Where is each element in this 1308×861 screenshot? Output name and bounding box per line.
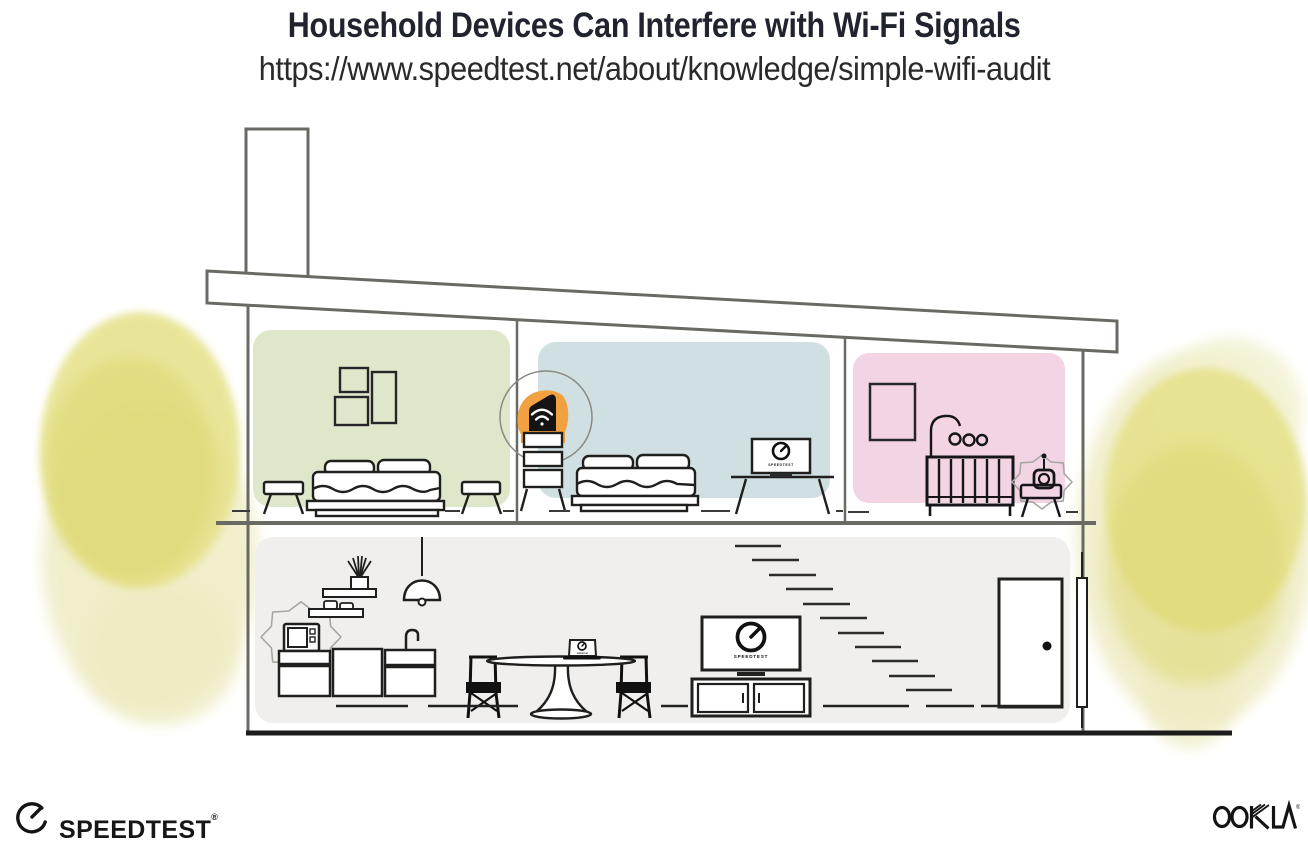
ookla-k (1252, 805, 1270, 829)
house-cross-section-illustration: SPEEDTEST (0, 0, 1308, 861)
kitchen-cabinets (279, 649, 435, 696)
shelf-unit (521, 433, 565, 511)
laptop-base (563, 656, 601, 660)
door-knob (1043, 642, 1052, 651)
tv-stand (737, 672, 765, 676)
front-door (999, 579, 1062, 707)
laptop-screen-label: SPEEDTEST (577, 653, 589, 655)
foliage-right (1077, 338, 1308, 748)
bedroom-tv: SPEEDTEST (752, 439, 810, 477)
bed-platform (572, 496, 698, 505)
tv-screen-label: SPEEDTEST (768, 463, 794, 467)
bed-base (316, 510, 438, 516)
bedroom-green (253, 330, 510, 516)
speedtest-logo: SPEEDTEST® (14, 799, 218, 848)
media-console (692, 679, 810, 716)
plant-pot (351, 577, 368, 589)
bedroom-blue: SPEEDTEST (500, 342, 834, 514)
shelf (309, 609, 363, 617)
cup (324, 601, 337, 609)
downspout (1077, 552, 1087, 728)
nursery-pink (853, 353, 1072, 517)
speedometer-gauge-icon (14, 799, 50, 835)
ookla-l (1272, 806, 1282, 827)
table-base (531, 710, 591, 719)
mattress (313, 472, 440, 501)
trademark-symbol: ® (1296, 804, 1300, 811)
table-top (487, 657, 635, 666)
bed-platform (307, 501, 444, 510)
ookla-logo: ® (1204, 800, 1300, 834)
chimney (246, 129, 308, 281)
bed-base (581, 505, 687, 511)
speedtest-wordmark: SPEEDTEST® (59, 799, 218, 848)
shelf (323, 589, 376, 597)
living-room-tv: SPEEDTEST (702, 617, 800, 676)
trademark-symbol: ® (211, 812, 218, 822)
ookla-a (1283, 806, 1296, 829)
infographic-page: Household Devices Can Interfere with Wi-… (0, 0, 1308, 861)
microwave (284, 624, 319, 651)
foliage-left (40, 312, 258, 725)
tv-stand (770, 473, 792, 477)
tv-screen-label: SPEEDTEST (734, 654, 769, 659)
lower-floor: SPEEDTEST SPEEDTEST (255, 537, 1087, 728)
